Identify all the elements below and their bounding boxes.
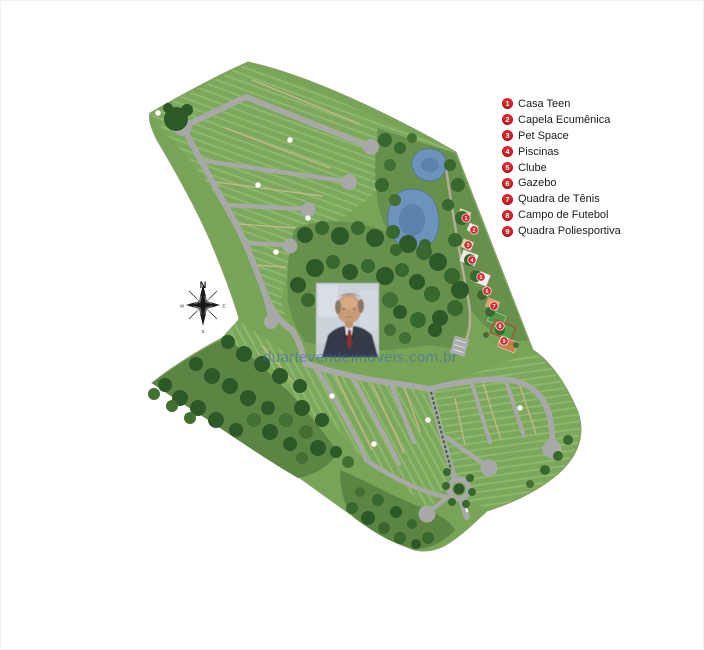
- legend-item: 8 Campo de Futebol: [502, 207, 621, 223]
- legend-badge: 5: [502, 162, 513, 173]
- legend-item: 3 Pet Space: [502, 128, 621, 144]
- legend-item: 2 Capela Ecumênica: [502, 112, 621, 128]
- map-marker-1: 1: [462, 214, 470, 222]
- legend-item: 5 Clube: [502, 160, 621, 176]
- legend-item-label: Quadra Poliesportiva: [518, 225, 621, 237]
- watermark-text: duartevendeimoveis.com.br: [263, 349, 457, 366]
- legend-badge: 6: [502, 178, 513, 189]
- map-marker-6: 6: [483, 287, 491, 295]
- legend-item-label: Quadra de Tênis: [518, 193, 600, 205]
- svg-text:5: 5: [479, 275, 482, 281]
- legend-badge: 4: [502, 146, 513, 157]
- legend-item-label: Pet Space: [518, 130, 569, 142]
- svg-text:6: 6: [485, 289, 488, 295]
- map-marker-7: 7: [490, 302, 498, 310]
- svg-text:8: 8: [498, 324, 501, 330]
- legend: 1 Casa Teen 2 Capela Ecumênica 3 Pet Spa…: [502, 96, 621, 239]
- legend-item: 6 Gazebo: [502, 175, 621, 191]
- legend-badge: 9: [502, 226, 513, 237]
- legend-badge: 7: [502, 194, 513, 205]
- legend-badge: 2: [502, 114, 513, 125]
- watermark-portrait-photo: [316, 283, 379, 357]
- legend-item-label: Piscinas: [518, 146, 559, 158]
- svg-text:2: 2: [472, 228, 475, 234]
- compass-east-label: E: [222, 304, 225, 309]
- legend-badge: 3: [502, 130, 513, 141]
- legend-badge: 8: [502, 210, 513, 221]
- legend-item-label: Capela Ecumênica: [518, 114, 610, 126]
- svg-text:3: 3: [466, 243, 469, 249]
- compass-south-label: S: [201, 329, 204, 334]
- legend-item: 7 Quadra de Tênis: [502, 191, 621, 207]
- legend-item-label: Campo de Futebol: [518, 209, 609, 221]
- legend-badge: 1: [502, 98, 513, 109]
- legend-item-label: Casa Teen: [518, 98, 570, 110]
- legend-item: 9 Quadra Poliesportiva: [502, 223, 621, 239]
- map-marker-4: 4: [468, 256, 476, 264]
- compass-north-label: N: [200, 280, 207, 290]
- map-marker-8: 8: [496, 322, 504, 330]
- compass-west-label: W: [180, 304, 185, 309]
- svg-text:1: 1: [464, 216, 467, 222]
- map-marker-9: 9: [500, 337, 508, 345]
- compass-rose: N E S W: [180, 280, 226, 334]
- svg-text:7: 7: [492, 304, 495, 310]
- legend-item: 1 Casa Teen: [502, 96, 621, 112]
- site-plan-image: 1 2 3 4 5 6 7 8 9 N E S W duartevendeimo…: [0, 0, 704, 650]
- legend-item-label: Clube: [518, 162, 547, 174]
- legend-item-label: Gazebo: [518, 177, 557, 189]
- map-marker-2: 2: [470, 226, 478, 234]
- svg-text:9: 9: [502, 339, 505, 345]
- legend-item: 4 Piscinas: [502, 144, 621, 160]
- map-marker-3: 3: [464, 241, 472, 249]
- map-marker-5: 5: [477, 273, 485, 281]
